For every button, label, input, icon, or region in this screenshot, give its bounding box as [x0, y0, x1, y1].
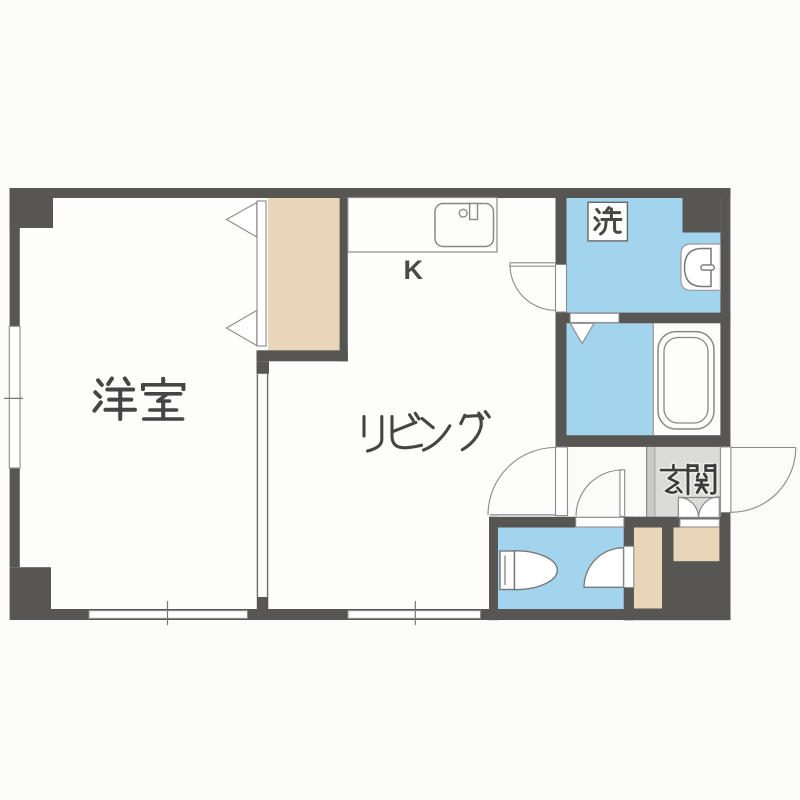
- svg-text:K: K: [404, 255, 424, 285]
